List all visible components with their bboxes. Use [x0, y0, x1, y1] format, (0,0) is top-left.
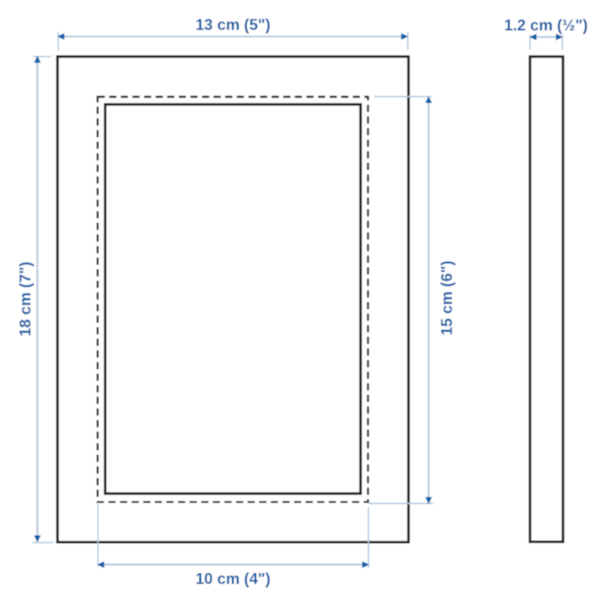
svg-text:15 cm (6"): 15 cm (6"): [439, 261, 456, 336]
svg-text:13 cm (5"): 13 cm (5"): [196, 17, 271, 34]
svg-text:18 cm (7"): 18 cm (7"): [18, 262, 35, 337]
svg-text:1.2 cm (½"): 1.2 cm (½"): [504, 18, 588, 35]
svg-text:10 cm (4"): 10 cm (4"): [196, 571, 271, 588]
